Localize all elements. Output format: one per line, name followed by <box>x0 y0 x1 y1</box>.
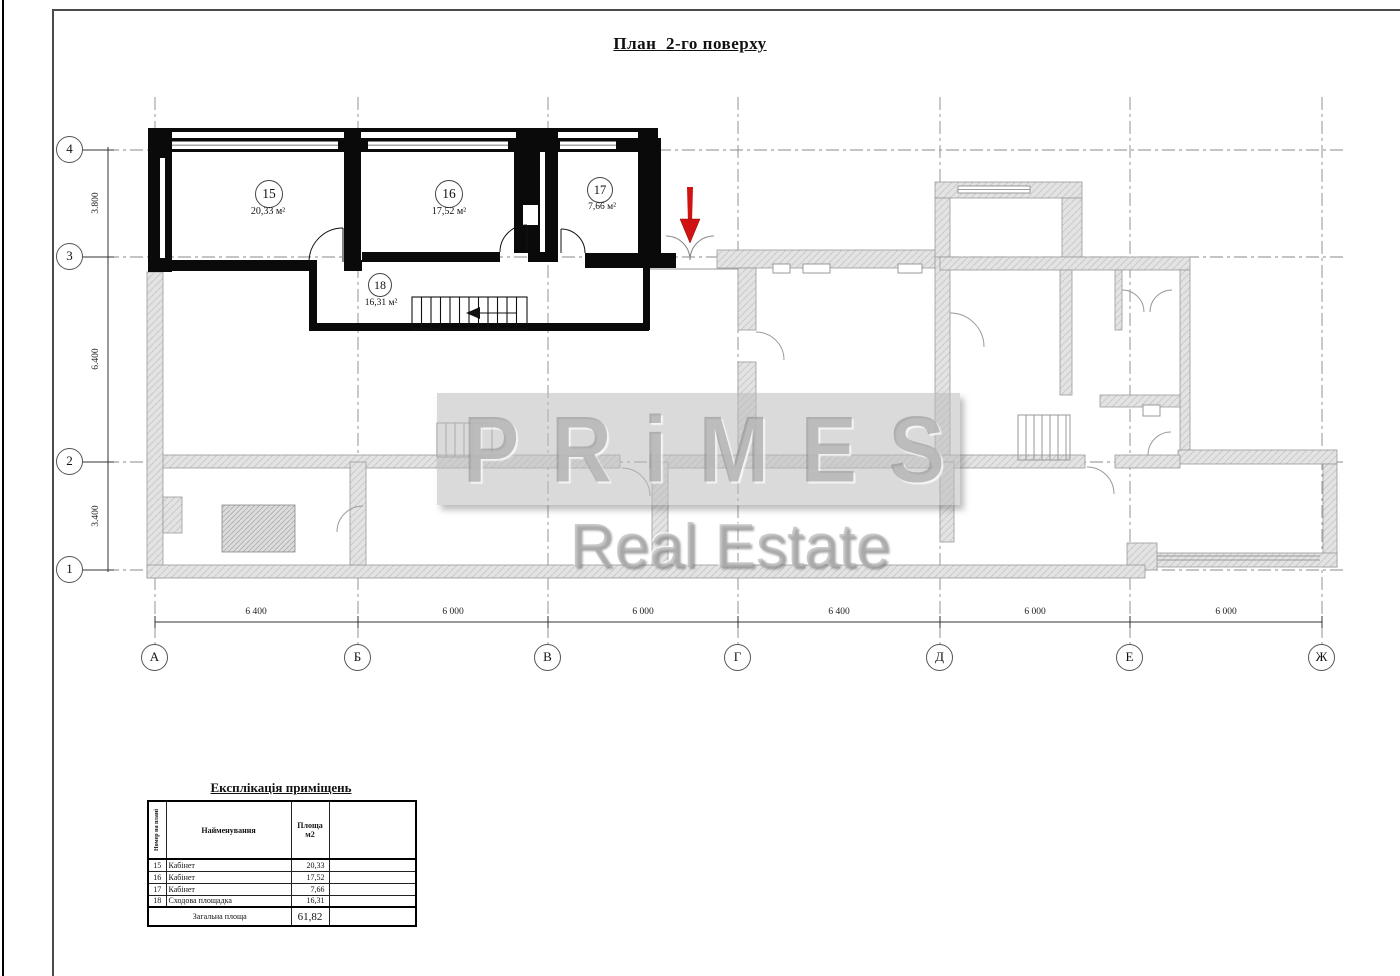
room-16-area: 17,52 м² <box>409 206 489 217</box>
room-18-bubble: 18 <box>368 273 392 297</box>
axis-row-4: 4 <box>56 136 83 163</box>
room-16-bubble: 16 <box>435 180 463 208</box>
row-17-number: 17 <box>148 883 166 895</box>
legend-table-title: Експлікація приміщень <box>147 780 415 796</box>
table-row-15: 15 Кабінет 20,33 <box>148 859 416 871</box>
axis-col-a: А <box>141 644 168 671</box>
col-header-name: Найменування <box>166 801 291 859</box>
row-18-area: 16,31 <box>291 895 329 907</box>
total-empty <box>329 907 416 926</box>
row-18-number: 18 <box>148 895 166 907</box>
row-17-empty <box>329 883 416 895</box>
dim-g-d: 6 400 <box>804 607 874 617</box>
stairs-small-right <box>1018 415 1070 460</box>
legend-table-block: Експлікація приміщень Номер на плані Най… <box>147 780 415 927</box>
watermark-band: PRiMES <box>437 393 960 505</box>
room-15-bubble: 15 <box>255 180 283 208</box>
col-header-empty <box>329 801 416 859</box>
col-header-area: Площа м2 <box>291 801 329 859</box>
room-17-area: 7,66 м² <box>562 202 642 212</box>
legend-table: Номер на плані Найменування Площа м2 15 … <box>147 800 417 927</box>
drawing-sheet: План 2-го поверху <box>0 0 1400 976</box>
dim-d-e: 6 000 <box>1000 607 1070 617</box>
row-15-empty <box>329 859 416 871</box>
room-17-bubble: 17 <box>587 177 613 203</box>
row-18-name: Сходова площадка <box>166 895 291 907</box>
row-15-number: 15 <box>148 859 166 871</box>
axis-col-g: Г <box>724 644 751 671</box>
axis-col-b: Б <box>344 644 371 671</box>
row-15-area: 20,33 <box>291 859 329 871</box>
watermark-subtitle: Real Estate <box>505 510 955 584</box>
dim-e-zh: 6 000 <box>1191 607 1261 617</box>
row-16-empty <box>329 871 416 883</box>
axis-row-3: 3 <box>56 243 83 270</box>
entrance-arrow-icon <box>680 187 700 243</box>
legend-total-row: Загальна площа 61,82 <box>148 907 416 926</box>
dim-b-v: 6 000 <box>418 607 488 617</box>
axis-row-1: 1 <box>56 556 83 583</box>
axis-row-2: 2 <box>56 448 83 475</box>
col-header-number: Номер на плані <box>148 801 166 859</box>
row-16-area: 17,52 <box>291 871 329 883</box>
row-15-name: Кабінет <box>166 859 291 871</box>
row-16-number: 16 <box>148 871 166 883</box>
room-18-area: 16,31 м² <box>341 298 421 308</box>
row-18-empty <box>329 895 416 907</box>
total-value: 61,82 <box>291 907 329 926</box>
table-row-16: 16 Кабінет 17,52 <box>148 871 416 883</box>
dim-a-b: 6 400 <box>221 607 291 617</box>
axis-col-d: Д <box>926 644 953 671</box>
table-row-18: 18 Сходова площадка 16,31 <box>148 895 416 907</box>
row-17-area: 7,66 <box>291 883 329 895</box>
dim-v-g: 6 000 <box>608 607 678 617</box>
watermark-brand: PRiMES <box>437 402 960 496</box>
axis-col-v: В <box>534 644 561 671</box>
page-title: План 2-го поверху <box>490 34 890 54</box>
axis-col-e: Е <box>1116 644 1143 671</box>
dim-rows-2-1: 3.400 <box>91 486 103 546</box>
dim-rows-4-3: 3.800 <box>91 173 103 233</box>
table-row-17: 17 Кабінет 7,66 <box>148 883 416 895</box>
legend-header-row: Номер на плані Найменування Площа м2 <box>148 801 416 859</box>
total-label: Загальна площа <box>148 907 291 926</box>
axis-col-zh: Ж <box>1308 644 1335 671</box>
room-15-area: 20,33 м² <box>228 206 308 217</box>
dim-rows-3-2: 6.400 <box>91 329 103 389</box>
row-17-name: Кабінет <box>166 883 291 895</box>
row-16-name: Кабінет <box>166 871 291 883</box>
